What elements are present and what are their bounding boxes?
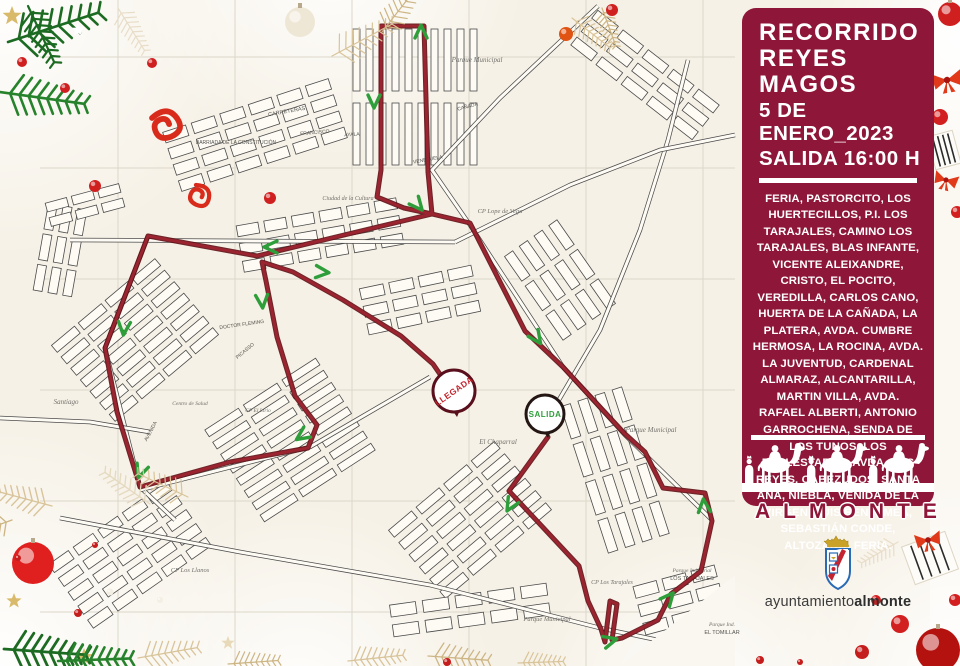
svg-text:Parque Industrial: Parque Industrial — [671, 568, 712, 574]
svg-text:Santiago: Santiago — [54, 398, 79, 406]
three-kings-camels-icon — [742, 438, 934, 498]
svg-text:SALIDA: SALIDA — [529, 410, 562, 419]
svg-text:AYALA: AYALA — [344, 132, 360, 139]
organization-name: ayuntamientoalmonte — [742, 594, 934, 610]
poster-title-line2: REYES MAGOS — [759, 46, 926, 98]
svg-text:Centro de Salud: Centro de Salud — [172, 401, 208, 407]
svg-text:Parque Ind.: Parque Ind. — [708, 622, 735, 628]
poster-title: RECORRIDO REYES MAGOS — [750, 20, 926, 98]
svg-text:CP Los Llanos: CP Los Llanos — [171, 567, 210, 574]
svg-text:EL TOMILLAR: EL TOMILLAR — [704, 630, 739, 636]
svg-text:CP Lope de Vega: CP Lope de Vega — [478, 208, 523, 215]
svg-text:BARRIADA DE LA CONSTITUCIÓN: BARRIADA DE LA CONSTITUCIÓN — [196, 139, 277, 146]
poster-title-line1: RECORRIDO — [759, 20, 926, 46]
poster-date: 5 DE ENERO_2023 — [750, 100, 926, 146]
svg-text:CP El Lirio: CP El Lirio — [245, 408, 271, 414]
svg-text:Parque Municipal: Parque Municipal — [625, 426, 677, 434]
svg-text:CP Los Tarajales: CP Los Tarajales — [591, 580, 633, 586]
svg-text:Parque Municipal: Parque Municipal — [522, 616, 570, 623]
reyes-magos-route-poster: { "panel": { "title_line1": "RECORRIDO",… — [0, 0, 960, 666]
poster-departure-time: SALIDA 16:00 H — [750, 148, 926, 171]
divider-top — [759, 178, 917, 183]
svg-text:El Chaparral: El Chaparral — [478, 438, 517, 446]
route-info-panel: RECORRIDO REYES MAGOS 5 DE ENERO_2023 SA… — [742, 8, 934, 506]
org-bold: almonte — [854, 594, 911, 610]
svg-text:Parque Municipal: Parque Municipal — [451, 56, 503, 64]
svg-text:Ciudad de la Cultura: Ciudad de la Cultura — [322, 196, 373, 202]
city-name: ALMONTE — [742, 500, 934, 524]
almonte-coat-of-arms — [808, 531, 868, 593]
org-regular: ayuntamiento — [765, 594, 854, 610]
